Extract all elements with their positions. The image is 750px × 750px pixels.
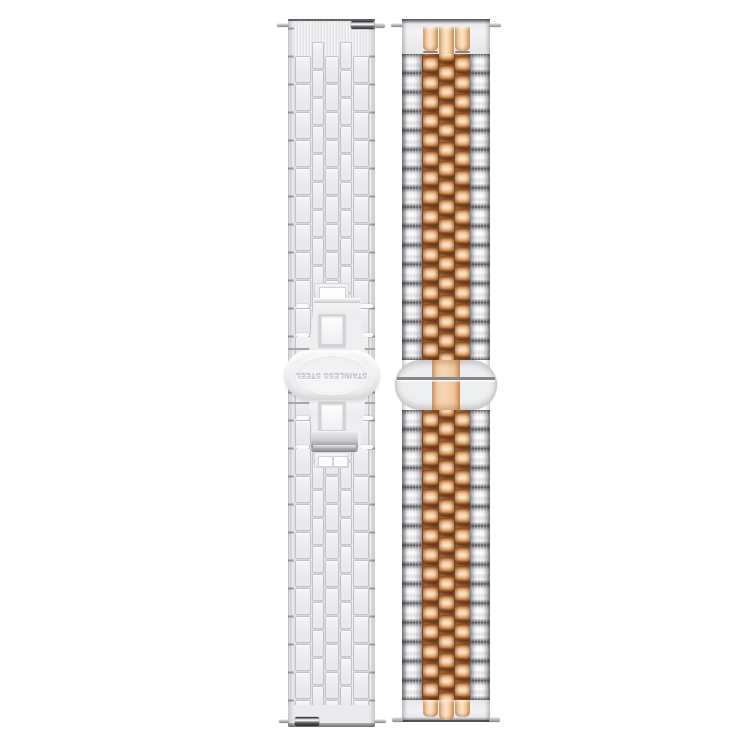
steel-link-brick — [325, 588, 339, 615]
rose-gold-link-bead — [439, 421, 454, 437]
steel-link-brick — [325, 532, 339, 559]
rose-gold-link-bead — [423, 132, 438, 148]
steel-link-brick — [340, 546, 352, 573]
rose-gold-link-bead — [423, 285, 438, 301]
rose-gold-link-bead — [439, 410, 454, 418]
rose-gold-link-bead — [455, 450, 470, 466]
rose-gold-link-bead — [455, 342, 470, 358]
steel-link-brick — [353, 672, 369, 699]
clasp-arm-highlight — [314, 298, 360, 303]
steel-link-brick — [353, 616, 369, 643]
steel-link-brick — [340, 518, 352, 545]
rose-gold-link-bead — [423, 304, 438, 320]
steel-link-brick — [325, 252, 339, 279]
silver-outer-link-column — [470, 54, 490, 360]
band-bottom-edge — [402, 720, 490, 723]
rose-gold-link-bead — [455, 189, 470, 205]
clasp-tongue — [311, 431, 358, 452]
rose-gold-link-bead — [439, 123, 454, 139]
steel-link-brick — [353, 504, 369, 531]
steel-link-brick — [340, 658, 352, 685]
rose-gold-end-tab — [455, 700, 470, 717]
end-tab-shadow — [455, 51, 470, 54]
rose-gold-link-bead — [423, 566, 438, 582]
rose-gold-link-bead — [423, 412, 438, 428]
rose-gold-link-bead — [439, 460, 454, 476]
rose-gold-link-bead — [439, 634, 454, 650]
rose-gold-link-bead — [455, 94, 470, 110]
rose-gold-link-bead — [455, 624, 470, 640]
steel-link-brick — [312, 574, 324, 601]
steel-link-brick — [340, 574, 352, 601]
steel-link-brick — [312, 98, 324, 125]
steel-link-brick — [312, 154, 324, 181]
polished-link-highlight — [360, 445, 373, 449]
rose-gold-link-bead — [439, 557, 454, 573]
silver-outer-link-column — [470, 410, 490, 700]
rose-gold-link-bead — [439, 180, 454, 196]
clasp-oval: STAINLESS STEEL — [297, 356, 367, 394]
rose-gold-link-bead — [439, 65, 454, 81]
spring-bar-pin — [374, 24, 385, 28]
steel-link-brick — [312, 70, 324, 97]
rose-gold-link-bead — [439, 256, 454, 272]
rose-gold-link-bead — [439, 499, 454, 515]
steel-link-brick — [325, 476, 339, 503]
rose-gold-link-bead — [423, 586, 438, 602]
steel-link-brick — [295, 308, 311, 335]
steel-link-brick — [295, 168, 311, 195]
clasp-connector-bottom — [314, 452, 349, 468]
clasp-window-inner — [321, 316, 343, 344]
link-rows-lower — [402, 410, 490, 700]
rose-gold-link-bead — [455, 431, 470, 447]
quick-release-tab — [295, 717, 319, 726]
rose-gold-link-bead — [439, 576, 454, 592]
steel-link-brick — [295, 448, 311, 475]
rose-gold-link-bead — [455, 56, 470, 72]
silver-outer-link-column — [402, 410, 422, 700]
steel-link-brick — [312, 490, 324, 517]
steel-link-brick — [353, 532, 369, 559]
rose-gold-link-bead — [455, 228, 470, 244]
steel-link-brick — [312, 658, 324, 685]
rose-gold-link-bead — [439, 276, 454, 292]
spring-bar-pin — [489, 24, 501, 28]
rose-gold-link-bead — [423, 75, 438, 91]
rose-gold-link-bead — [423, 56, 438, 72]
spring-bar-pin — [277, 24, 289, 28]
steel-link-brick — [353, 168, 369, 195]
rose-gold-link-bead — [439, 692, 454, 700]
link-shading — [470, 54, 490, 360]
rose-gold-link-bead — [423, 489, 438, 505]
rose-gold-link-bead — [423, 605, 438, 621]
steel-link-brick — [325, 644, 339, 671]
link-shading — [470, 410, 490, 700]
rose-gold-link-bead — [423, 450, 438, 466]
steel-link-brick — [325, 84, 339, 111]
polished-link-highlight — [296, 333, 309, 337]
rose-gold-link-bead — [439, 441, 454, 457]
rose-gold-link-bead — [439, 595, 454, 611]
clasp-window-upper — [318, 313, 346, 347]
rose-gold-link-bead — [423, 342, 438, 358]
rose-gold-link-bead — [423, 528, 438, 544]
rose-gold-link-bead — [423, 266, 438, 282]
rose-gold-link-bead — [423, 170, 438, 186]
spring-bar-pin — [392, 718, 403, 722]
spring-bar-pin — [391, 24, 403, 28]
spring-bar-pin — [279, 720, 289, 724]
clasp-window-inner — [321, 404, 343, 430]
rose-gold-link-bead — [455, 682, 470, 698]
rose-gold-link-bead — [455, 75, 470, 91]
rose-gold-link-bead — [455, 586, 470, 602]
spring-bar-pin — [489, 718, 500, 722]
steel-link-brick — [312, 210, 324, 237]
right-watch-band — [402, 19, 490, 722]
polished-link-highlight — [296, 304, 309, 308]
rose-gold-link-bead — [439, 199, 454, 215]
rose-gold-link-bead — [439, 333, 454, 349]
steel-link-brick — [325, 560, 339, 587]
steel-link-brick — [312, 42, 324, 69]
rose-gold-link-bead — [423, 470, 438, 486]
left-watch-band: STAINLESS STEEL — [288, 19, 375, 727]
end-link-top — [402, 19, 490, 54]
steel-link-brick — [340, 238, 352, 265]
product-image: STAINLESS STEEL — [0, 0, 750, 750]
rose-gold-link-bead — [439, 218, 454, 234]
rose-gold-link-bead — [439, 161, 454, 177]
rose-gold-link-bead — [455, 605, 470, 621]
rose-gold-link-bead — [423, 624, 438, 640]
rose-gold-link-bead — [439, 615, 454, 631]
rose-gold-link-bead — [423, 247, 438, 263]
steel-link-brick — [353, 476, 369, 503]
rose-gold-end-tab — [423, 700, 438, 717]
rose-gold-link-bead — [455, 113, 470, 129]
rose-gold-link-bead — [439, 295, 454, 311]
rose-gold-link-bead — [423, 508, 438, 524]
rose-gold-end-tab — [439, 700, 454, 720]
rose-gold-link-bead — [439, 673, 454, 689]
steel-link-brick — [295, 644, 311, 671]
polished-link-highlight — [296, 416, 309, 420]
clasp-connector-top — [314, 283, 349, 300]
steel-link-brick — [295, 504, 311, 531]
rose-gold-link-bead — [455, 151, 470, 167]
link-shading — [402, 54, 422, 360]
clasp-tongue-ridge — [313, 445, 356, 448]
steel-link-brick — [295, 588, 311, 615]
steel-link-brick — [353, 112, 369, 139]
rose-gold-link-bead — [423, 228, 438, 244]
polished-link-highlight — [296, 445, 309, 449]
steel-link-brick — [325, 504, 339, 531]
steel-link-brick — [295, 560, 311, 587]
steel-link-brick — [340, 602, 352, 629]
end-link-bottom — [402, 700, 490, 722]
steel-link-brick — [353, 644, 369, 671]
rose-gold-link-bead — [455, 209, 470, 225]
rose-gold-link-bead — [423, 682, 438, 698]
rose-gold-link-bead — [423, 94, 438, 110]
steel-link-brick — [340, 490, 352, 517]
steel-link-brick — [312, 546, 324, 573]
steel-link-brick — [325, 224, 339, 251]
steel-link-brick — [353, 196, 369, 223]
steel-link-brick — [295, 420, 311, 447]
steel-link-brick — [295, 140, 311, 167]
end-tab-shadow — [423, 51, 438, 54]
clasp-connector-window — [319, 287, 346, 299]
rose-gold-link-bead — [439, 103, 454, 119]
rose-gold-link-bead — [423, 209, 438, 225]
rose-gold-link-bead — [439, 479, 454, 495]
steel-link-brick — [295, 112, 311, 139]
steel-link-brick — [312, 126, 324, 153]
steel-link-brick — [353, 140, 369, 167]
rose-gold-link-bead — [423, 644, 438, 660]
steel-link-brick — [340, 42, 352, 69]
rose-gold-link-bead — [455, 470, 470, 486]
steel-link-brick — [295, 224, 311, 251]
rose-gold-link-bead — [439, 314, 454, 330]
rose-gold-link-bead — [455, 644, 470, 660]
steel-link-brick — [295, 252, 311, 279]
rose-gold-link-bead — [439, 84, 454, 100]
rose-gold-link-bead — [423, 151, 438, 167]
clasp-connector-window — [318, 456, 333, 467]
clasp-connector-window — [333, 456, 348, 467]
steel-link-brick — [325, 672, 339, 699]
rose-gold-link-bead — [455, 132, 470, 148]
link-shading — [402, 410, 422, 700]
rose-gold-link-bead — [439, 237, 454, 253]
clasp-window-lower — [318, 401, 346, 433]
rose-gold-link-bead — [455, 528, 470, 544]
rose-gold-link-bead — [455, 663, 470, 679]
steel-link-brick — [325, 56, 339, 83]
rose-gold-link-bead — [439, 352, 454, 360]
rose-gold-link-bead — [455, 489, 470, 505]
rose-gold-link-bead — [423, 663, 438, 679]
steel-link-brick — [312, 238, 324, 265]
steel-link-brick — [312, 518, 324, 545]
steel-link-brick — [340, 154, 352, 181]
rose-gold-link-bead — [455, 566, 470, 582]
rose-gold-end-tab — [455, 27, 470, 51]
rose-gold-link-bead — [455, 285, 470, 301]
rose-gold-link-bead — [455, 412, 470, 428]
steel-link-brick — [325, 112, 339, 139]
rose-gold-link-bead — [455, 323, 470, 339]
fold-over-clasp-plate — [395, 360, 497, 410]
steel-link-brick — [312, 630, 324, 657]
clasp-rose-gold-strip — [432, 360, 460, 410]
steel-link-brick — [295, 476, 311, 503]
spring-bar-pin — [374, 720, 386, 724]
steel-link-brick — [325, 140, 339, 167]
rose-gold-link-bead — [439, 142, 454, 158]
steel-link-brick — [353, 252, 369, 279]
rose-gold-link-bead — [455, 547, 470, 563]
steel-link-brick — [353, 56, 369, 83]
steel-link-brick — [295, 84, 311, 111]
clasp-engraving: STAINLESS STEEL — [295, 372, 367, 379]
steel-link-brick — [295, 616, 311, 643]
link-rows-upper — [402, 54, 490, 360]
quick-release-tab — [351, 21, 374, 30]
rose-gold-link-bead — [423, 431, 438, 447]
rose-gold-link-bead — [423, 323, 438, 339]
steel-link-brick — [340, 210, 352, 237]
steel-link-brick — [325, 616, 339, 643]
butterfly-clasp-cover: STAINLESS STEEL — [284, 350, 380, 400]
steel-link-brick — [340, 182, 352, 209]
steel-link-brick — [340, 70, 352, 97]
silver-outer-link-column — [402, 54, 422, 360]
polished-link-highlight — [360, 304, 373, 308]
steel-link-brick — [295, 196, 311, 223]
steel-link-brick — [295, 56, 311, 83]
rose-gold-link-bead — [455, 508, 470, 524]
rose-gold-link-bead — [439, 537, 454, 553]
rose-gold-link-bead — [455, 266, 470, 282]
steel-link-brick — [340, 630, 352, 657]
steel-link-brick — [312, 182, 324, 209]
rose-gold-link-bead — [423, 547, 438, 563]
steel-link-brick — [353, 588, 369, 615]
steel-link-brick — [325, 196, 339, 223]
rose-gold-link-bead — [423, 189, 438, 205]
steel-link-brick — [353, 84, 369, 111]
rose-gold-link-bead — [455, 247, 470, 263]
steel-link-brick — [353, 224, 369, 251]
steel-link-brick — [295, 280, 311, 307]
rose-gold-link-bead — [439, 518, 454, 534]
steel-link-brick — [325, 168, 339, 195]
rose-gold-link-bead — [455, 304, 470, 320]
rose-gold-link-bead — [439, 653, 454, 669]
steel-link-brick — [353, 560, 369, 587]
steel-link-brick — [340, 98, 352, 125]
rose-gold-link-bead — [455, 170, 470, 186]
steel-link-brick — [295, 532, 311, 559]
rose-gold-link-bead — [423, 113, 438, 129]
clasp-opening-seam — [397, 377, 495, 380]
steel-link-brick — [295, 672, 311, 699]
rose-gold-end-tab — [423, 27, 438, 51]
steel-link-brick — [312, 602, 324, 629]
rose-gold-link-bead — [439, 54, 454, 62]
steel-link-brick — [340, 126, 352, 153]
